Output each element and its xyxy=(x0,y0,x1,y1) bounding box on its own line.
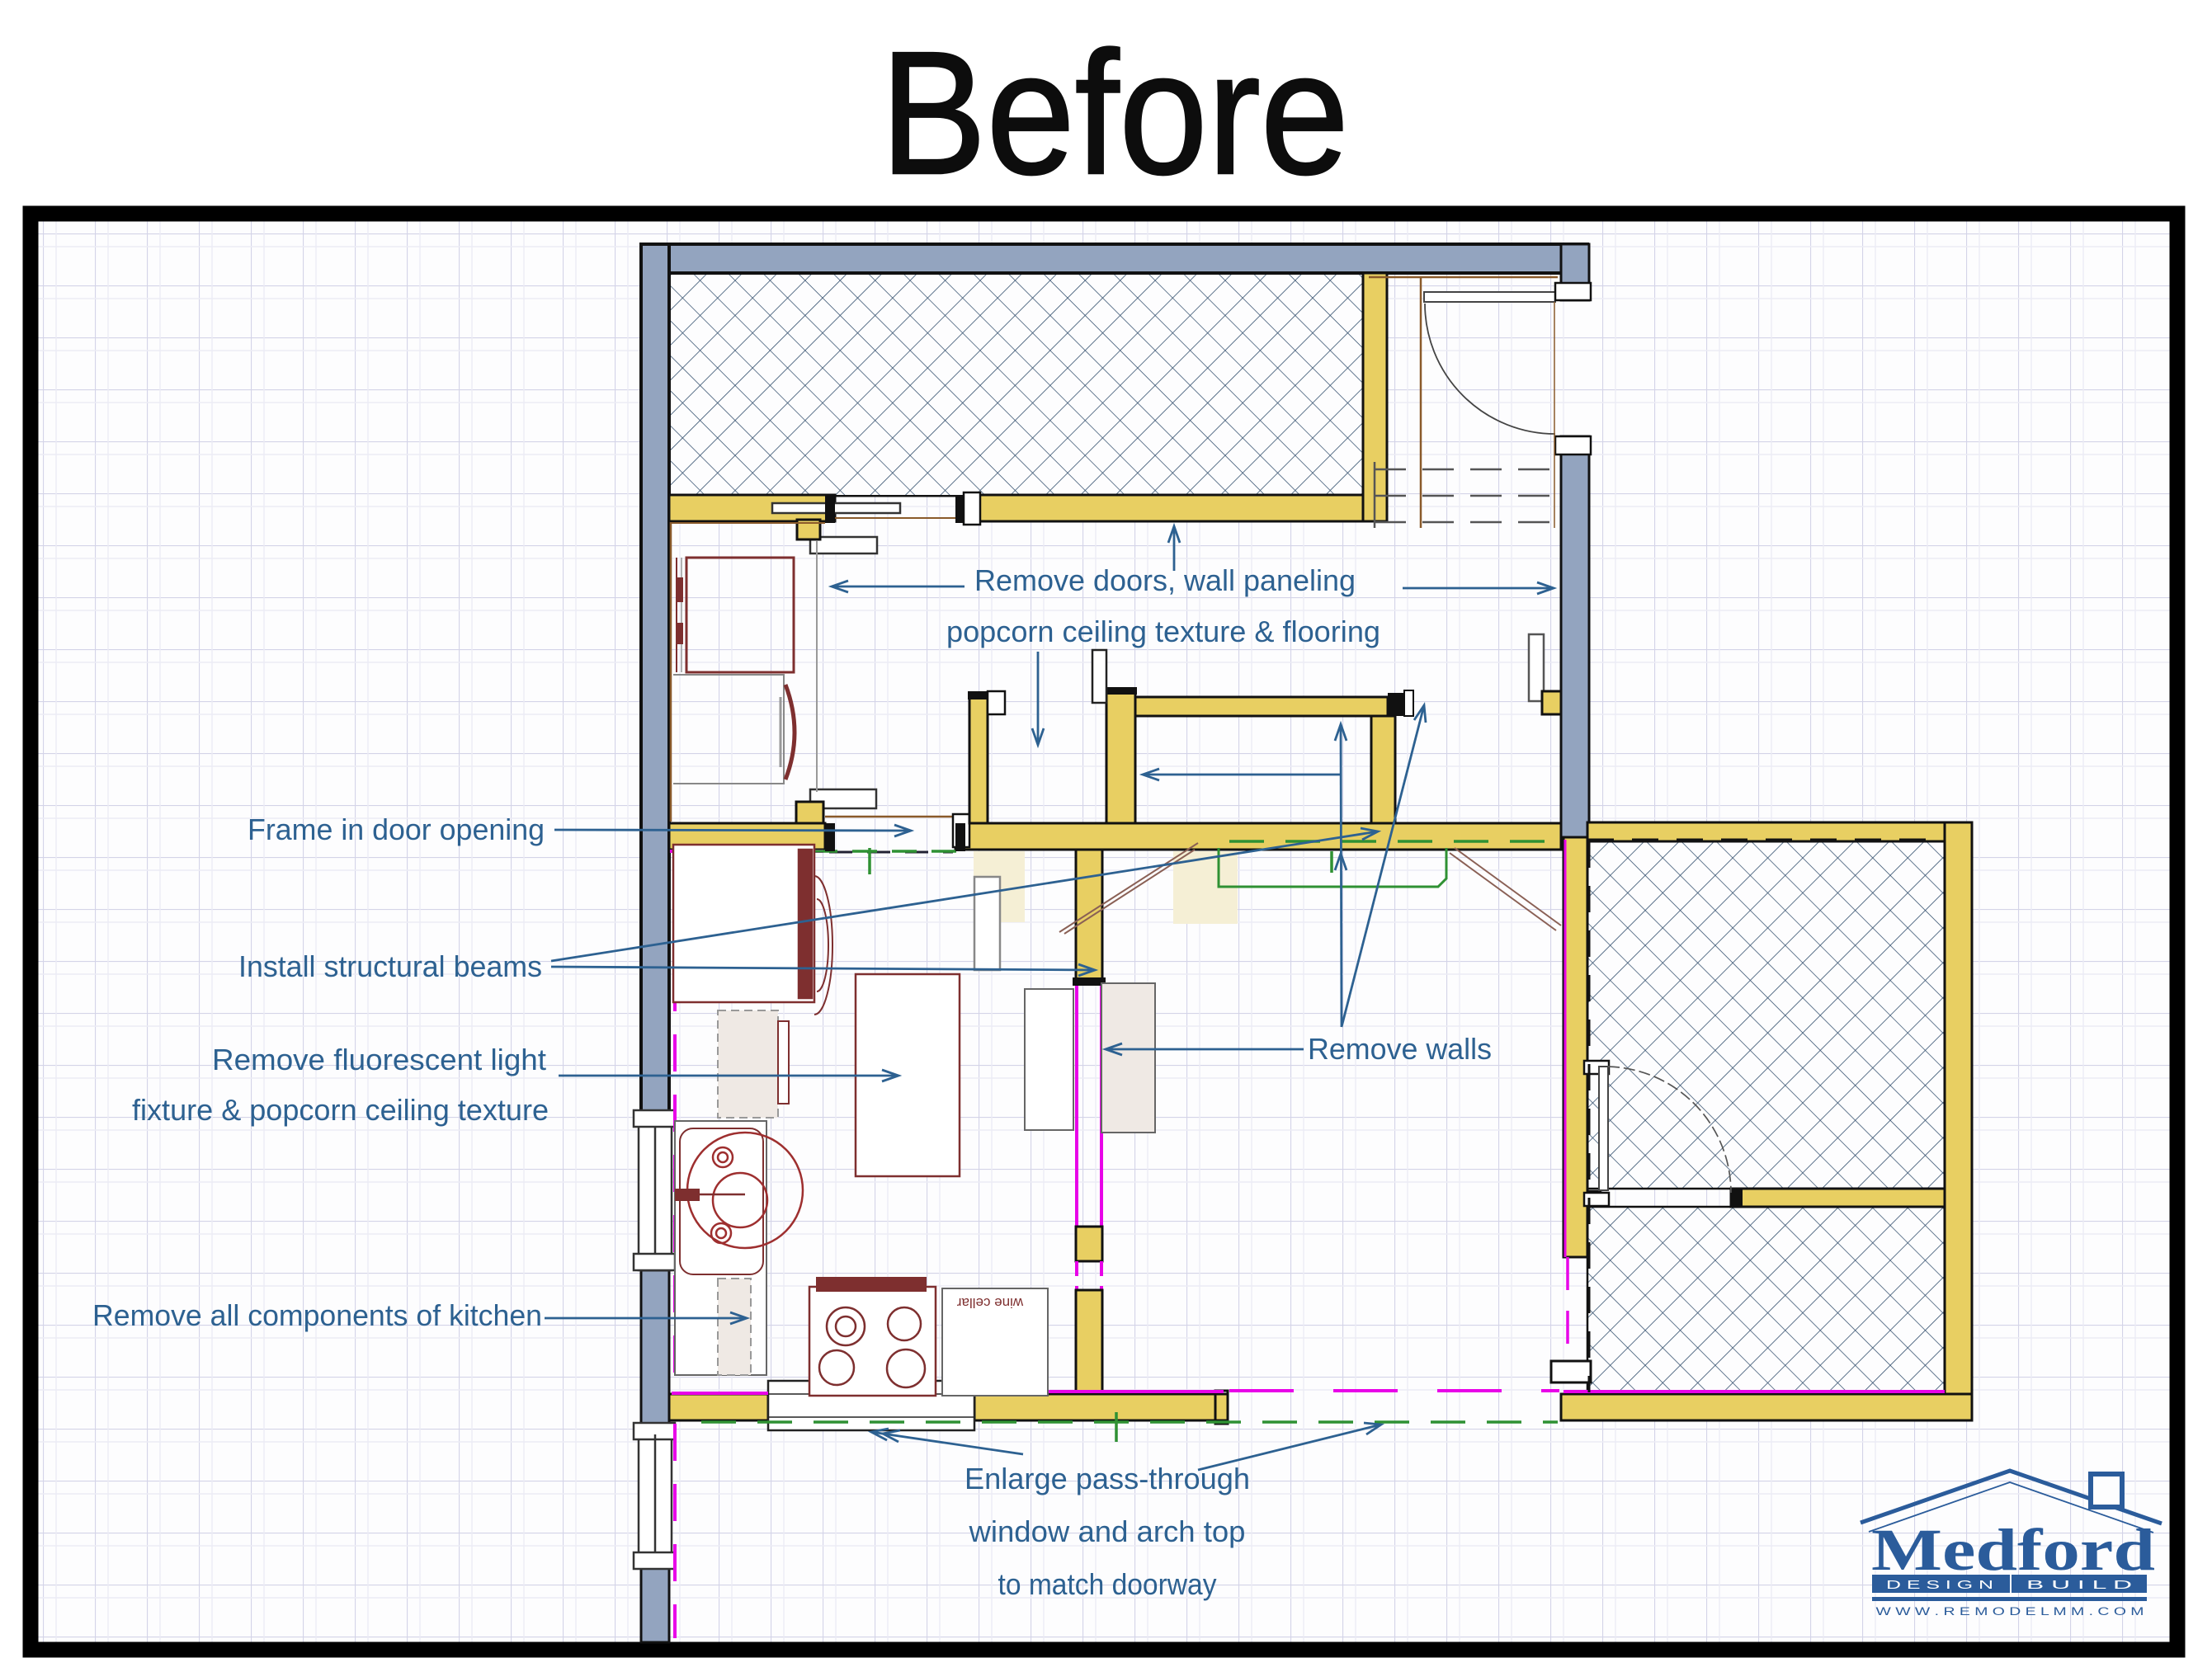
svg-text:Medford: Medford xyxy=(1871,1517,2155,1583)
svg-text:B U I L D: B U I L D xyxy=(2026,1578,2132,1592)
svg-text:popcorn ceiling texture & floo: popcorn ceiling texture & flooring xyxy=(946,615,1380,648)
svg-text:Remove walls: Remove walls xyxy=(1308,1032,1492,1066)
svg-text:Enlarge pass-through: Enlarge pass-through xyxy=(965,1462,1250,1495)
svg-text:Remove doors, wall paneling: Remove doors, wall paneling xyxy=(974,563,1356,597)
svg-text:Install structural beams: Install structural beams xyxy=(238,949,542,983)
svg-text:window and arch top: window and arch top xyxy=(968,1514,1245,1548)
svg-text:wine cellar: wine cellar xyxy=(957,1295,1025,1311)
svg-text:Remove all components of kitch: Remove all components of kitchen xyxy=(92,1298,542,1332)
svg-text:Frame in door opening: Frame in door opening xyxy=(248,812,545,846)
svg-text:W W W . R E M O D E L M M . C: W W W . R E M O D E L M M . C O M xyxy=(1876,1605,2144,1618)
svg-text:fixture & popcorn ceiling text: fixture & popcorn ceiling texture xyxy=(132,1093,549,1127)
svg-text:D E S I G N: D E S I G N xyxy=(1886,1578,1993,1592)
svg-text:Before: Before xyxy=(880,15,1349,210)
svg-text:to match doorway: to match doorway xyxy=(998,1567,1217,1601)
svg-text:Remove fluorescent light: Remove fluorescent light xyxy=(212,1043,546,1076)
